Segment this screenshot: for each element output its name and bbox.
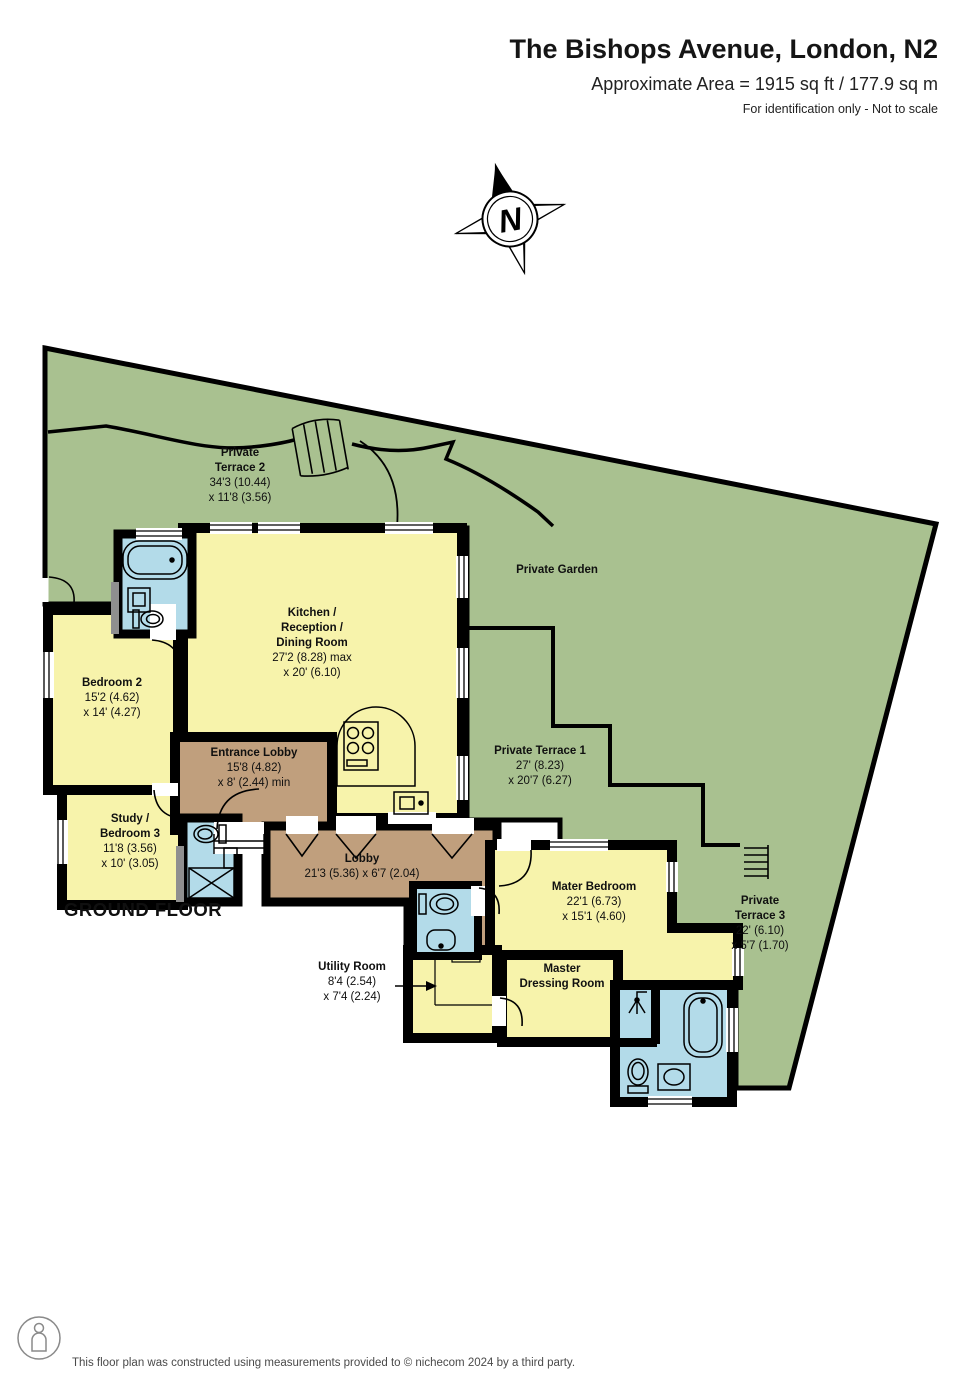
- room-dims: 22' (6.10) x 5'7 (1.70): [731, 924, 788, 954]
- room-label-mater-bedroom: Mater Bedroom 22'1 (6.73) x 15'1 (4.60): [552, 880, 636, 925]
- room-name: Private Terrace 1: [494, 744, 586, 759]
- header: The Bishops Avenue, London, N2 Approxima…: [509, 34, 938, 116]
- room-dims: 8'4 (2.54) x 7'4 (2.24): [318, 975, 386, 1005]
- room-label-utility-room: Utility Room 8'4 (2.54) x 7'4 (2.24): [318, 960, 386, 1005]
- room-label-lobby: Lobby 21'3 (5.36) x 6'7 (2.04): [305, 852, 420, 882]
- garden-label: Private Garden: [516, 564, 598, 576]
- room-label-kitchen: Kitchen / Reception / Dining Room 27'2 (…: [272, 606, 352, 681]
- room-dims: 15'2 (4.62) x 14' (4.27): [82, 691, 142, 721]
- room-dims: 34'3 (10.44) x 11'8 (3.56): [209, 476, 272, 506]
- room-name: Kitchen / Reception / Dining Room: [272, 606, 352, 651]
- room-label-entrance-lobby: Entrance Lobby 15'8 (4.82) x 8' (2.44) m…: [211, 746, 298, 791]
- room-name: Bedroom 2: [82, 676, 142, 691]
- room-label-private-terrace-3: Private Terrace 3 22' (6.10) x 5'7 (1.70…: [731, 894, 788, 954]
- room-label-private-terrace-1: Private Terrace 1 27' (8.23) x 20'7 (6.2…: [494, 744, 586, 789]
- compass-icon: N: [441, 150, 578, 287]
- floor-label: GROUND FLOOR: [64, 899, 222, 921]
- room-name: Master Dressing Room: [520, 962, 605, 992]
- room-name: Private Terrace 3: [731, 894, 788, 924]
- room-label-bedroom-2: Bedroom 2 15'2 (4.62) x 14' (4.27): [82, 676, 142, 721]
- room-dims: 27' (8.23) x 20'7 (6.27): [494, 759, 586, 789]
- room-name: Study / Bedroom 3: [100, 812, 160, 842]
- room-utility: [408, 950, 497, 1038]
- entrance-porch: [214, 834, 264, 854]
- room-label-private-terrace-2: Private Terrace 2 34'3 (10.44) x 11'8 (3…: [209, 446, 272, 506]
- page-title: The Bishops Avenue, London, N2: [509, 34, 938, 65]
- room-label-master-dressing-room: Master Dressing Room: [520, 962, 605, 992]
- room-name: Private Terrace 2: [209, 446, 272, 476]
- room-name: Utility Room: [318, 960, 386, 975]
- floor-plan-canvas: N: [0, 0, 980, 1385]
- room-dims: 22'1 (6.73) x 15'1 (4.60): [552, 895, 636, 925]
- disclaimer-text: For identification only - Not to scale: [509, 102, 938, 116]
- room-name: Lobby: [305, 852, 420, 867]
- footer-line1: This floor plan was constructed using me…: [72, 1355, 575, 1372]
- floorplan-page: N The Bishops Avenue, London, N2 Approxi…: [0, 0, 980, 1385]
- footer: This floor plan was constructed using me…: [16, 1315, 575, 1385]
- room-dims: 11'8 (3.56) x 10' (3.05): [100, 842, 160, 872]
- room-label-study: Study / Bedroom 3 11'8 (3.56) x 10' (3.0…: [100, 812, 160, 872]
- room-dims: 21'3 (5.36) x 6'7 (2.04): [305, 867, 420, 882]
- room-dims: 15'8 (4.82) x 8' (2.44) min: [211, 761, 298, 791]
- approximate-area: Approximate Area = 1915 sq ft / 177.9 sq…: [509, 74, 938, 95]
- room-dims: 27'2 (8.28) max x 20' (6.10): [272, 651, 352, 681]
- person-icon: [16, 1315, 62, 1361]
- room-wc: [413, 885, 478, 956]
- footer-text: This floor plan was constructed using me…: [72, 1320, 575, 1385]
- room-name: Entrance Lobby: [211, 746, 298, 761]
- room-name: Mater Bedroom: [552, 880, 636, 895]
